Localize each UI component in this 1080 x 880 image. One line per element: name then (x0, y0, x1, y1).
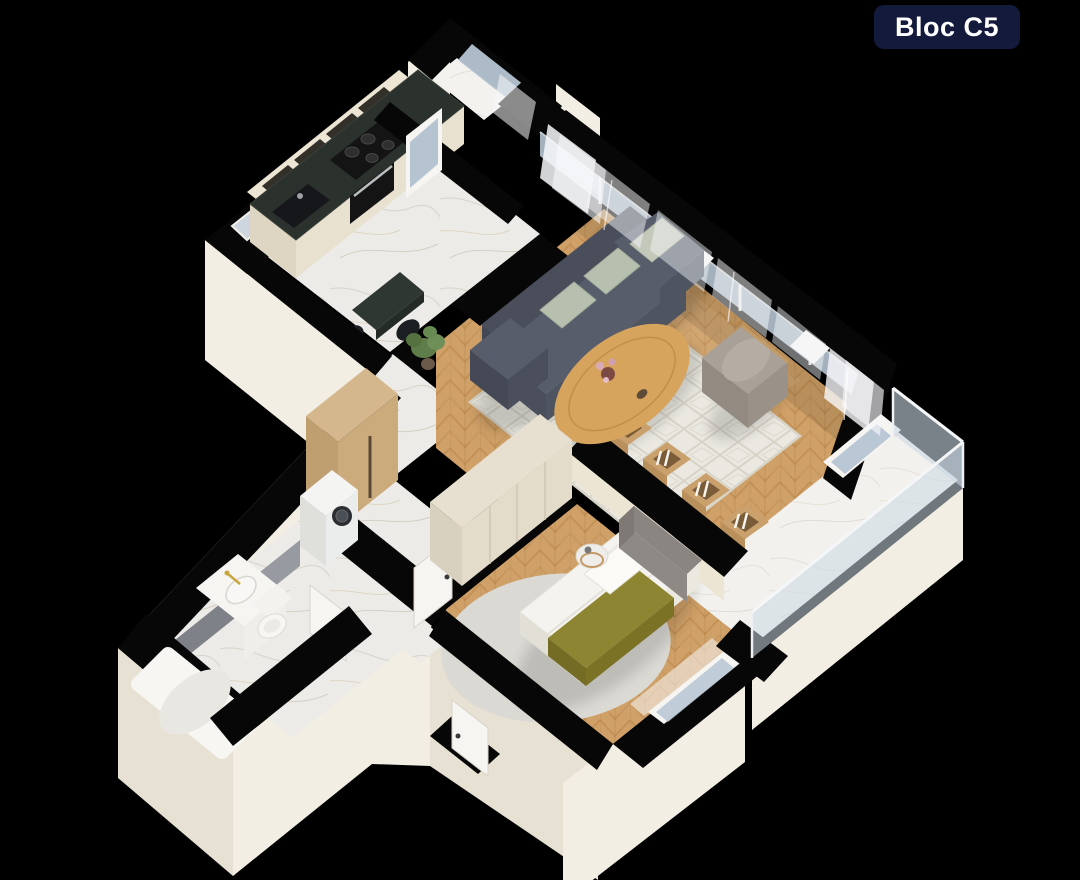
plant (406, 333, 422, 347)
bedside-decor (585, 547, 592, 554)
bedside-table (576, 544, 608, 568)
hob-burner (366, 154, 378, 163)
hob-burner (382, 141, 394, 150)
vanity-faucet (225, 571, 230, 576)
door-handle (445, 575, 450, 580)
flowers (596, 362, 604, 370)
flowers (603, 377, 609, 383)
floor-plan-canvas: Bloc C5 (0, 0, 1080, 880)
door-handle (456, 734, 461, 739)
plant-pot (421, 358, 435, 370)
hob-burner (361, 134, 375, 144)
sink-faucet (297, 193, 303, 199)
apartment-3d-floor-plan (0, 0, 1080, 880)
washer-door-glass (336, 510, 348, 522)
flowers (609, 359, 616, 366)
hob-burner (345, 147, 359, 157)
block-label-badge[interactable]: Bloc C5 (874, 5, 1020, 49)
plant (423, 326, 437, 338)
